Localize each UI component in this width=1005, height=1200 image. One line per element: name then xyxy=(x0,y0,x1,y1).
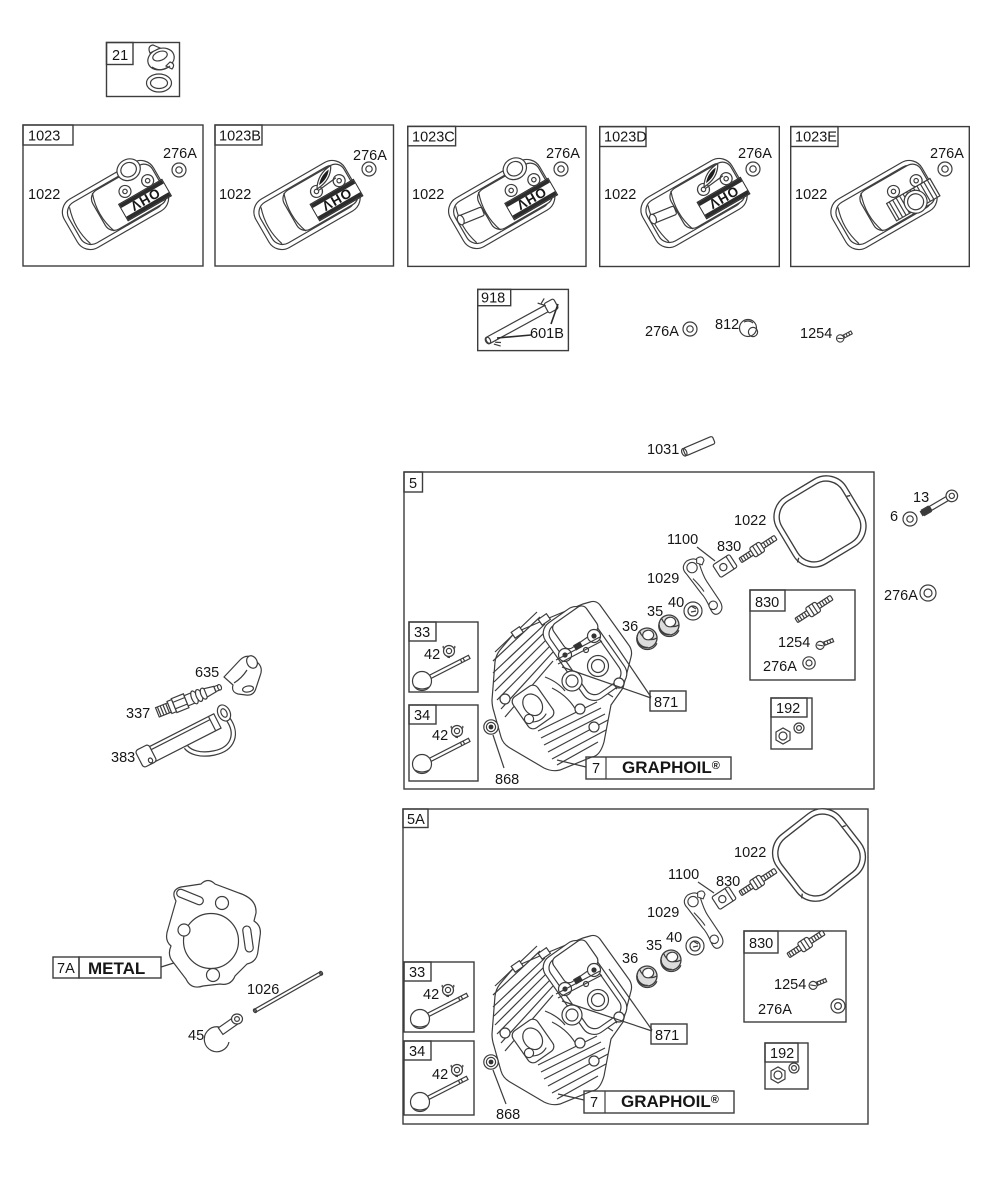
svg-text:33: 33 xyxy=(414,625,430,641)
svg-text:METAL: METAL xyxy=(88,959,145,978)
svg-text:21: 21 xyxy=(112,48,128,64)
svg-text:34: 34 xyxy=(409,1044,425,1060)
svg-text:1023: 1023 xyxy=(28,129,60,145)
svg-text:7A: 7A xyxy=(57,961,75,977)
svg-text:1022: 1022 xyxy=(604,187,636,203)
svg-text:40: 40 xyxy=(668,595,684,611)
svg-text:192: 192 xyxy=(776,701,800,717)
svg-text:7: 7 xyxy=(592,761,600,777)
svg-text:33: 33 xyxy=(409,965,425,981)
svg-text:42: 42 xyxy=(424,647,440,663)
svg-text:1022: 1022 xyxy=(28,187,60,203)
svg-text:5A: 5A xyxy=(407,812,425,828)
svg-text:35: 35 xyxy=(647,604,663,620)
svg-text:40: 40 xyxy=(666,930,682,946)
svg-text:1022: 1022 xyxy=(412,187,444,203)
svg-text:1029: 1029 xyxy=(647,571,679,587)
svg-text:635: 635 xyxy=(195,665,219,681)
svg-text:1022: 1022 xyxy=(734,513,766,529)
svg-text:830: 830 xyxy=(717,539,741,555)
svg-text:1023B: 1023B xyxy=(219,129,261,145)
svg-text:45: 45 xyxy=(188,1028,204,1044)
svg-text:1023E: 1023E xyxy=(795,130,837,146)
svg-text:601B: 601B xyxy=(530,326,564,342)
svg-text:5: 5 xyxy=(409,476,417,492)
svg-text:1254: 1254 xyxy=(774,977,806,993)
svg-text:1100: 1100 xyxy=(668,867,699,883)
svg-text:918: 918 xyxy=(481,291,505,307)
svg-text:6: 6 xyxy=(890,509,898,525)
svg-text:1254: 1254 xyxy=(778,635,810,651)
svg-text:36: 36 xyxy=(622,951,638,967)
svg-text:GRAPHOIL®: GRAPHOIL® xyxy=(621,1092,719,1111)
svg-text:276A: 276A xyxy=(645,324,679,340)
svg-text:276A: 276A xyxy=(930,146,964,162)
svg-text:868: 868 xyxy=(496,1107,520,1123)
svg-text:871: 871 xyxy=(655,1028,679,1044)
svg-text:276A: 276A xyxy=(758,1002,792,1018)
svg-text:276A: 276A xyxy=(163,146,197,162)
svg-text:1023D: 1023D xyxy=(604,130,647,146)
svg-text:42: 42 xyxy=(432,1067,448,1083)
svg-text:830: 830 xyxy=(749,936,773,952)
svg-text:276A: 276A xyxy=(546,146,580,162)
svg-text:871: 871 xyxy=(654,695,678,711)
svg-text:13: 13 xyxy=(913,490,929,506)
svg-text:1022: 1022 xyxy=(795,187,827,203)
svg-text:34: 34 xyxy=(414,708,430,724)
svg-text:35: 35 xyxy=(646,938,662,954)
svg-text:1023C: 1023C xyxy=(412,130,455,146)
svg-text:868: 868 xyxy=(495,772,519,788)
svg-text:830: 830 xyxy=(716,874,740,890)
svg-text:1026: 1026 xyxy=(247,982,279,998)
svg-text:42: 42 xyxy=(432,728,448,744)
svg-text:1022: 1022 xyxy=(219,187,251,203)
svg-text:1029: 1029 xyxy=(647,905,679,921)
svg-text:276A: 276A xyxy=(763,659,797,675)
svg-text:1031: 1031 xyxy=(647,442,679,458)
svg-text:42: 42 xyxy=(423,987,439,1003)
svg-text:337: 337 xyxy=(126,706,150,722)
svg-text:GRAPHOIL®: GRAPHOIL® xyxy=(622,758,720,777)
svg-text:7: 7 xyxy=(590,1095,598,1111)
svg-text:1022: 1022 xyxy=(734,845,766,861)
svg-text:812: 812 xyxy=(715,317,739,333)
svg-text:192: 192 xyxy=(770,1046,794,1062)
svg-text:36: 36 xyxy=(622,619,638,635)
svg-text:383: 383 xyxy=(111,750,135,766)
svg-text:276A: 276A xyxy=(884,588,918,604)
svg-text:276A: 276A xyxy=(738,146,772,162)
svg-text:1254: 1254 xyxy=(800,326,832,342)
svg-text:1100: 1100 xyxy=(667,532,698,548)
svg-text:830: 830 xyxy=(755,595,779,611)
